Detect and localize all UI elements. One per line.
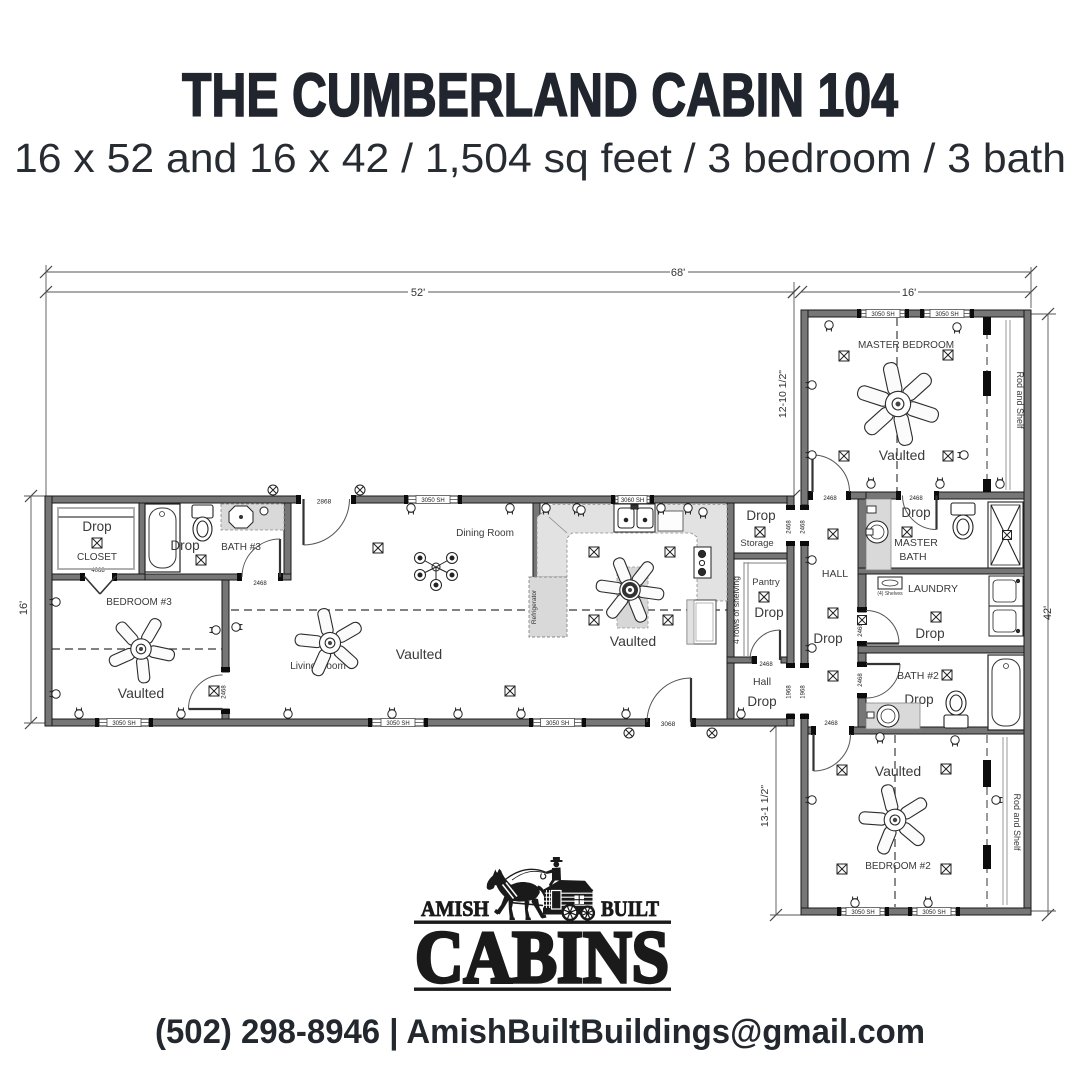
svg-text:(502) 298-8946 | AmishBuiltBui: (502) 298-8946 | AmishBuiltBuildings@gma…: [155, 1013, 925, 1051]
svg-text:Vaulted: Vaulted: [118, 685, 164, 701]
svg-text:16': 16': [18, 601, 30, 615]
svg-text:68': 68': [671, 267, 685, 279]
svg-text:Drop: Drop: [915, 626, 944, 641]
svg-text:Drop: Drop: [82, 519, 111, 534]
svg-text:13-1 1/2": 13-1 1/2": [759, 785, 771, 828]
svg-text:BATH #2: BATH #2: [897, 670, 939, 682]
svg-text:CLOSET: CLOSET: [77, 552, 117, 563]
svg-text:BEDROOM #3: BEDROOM #3: [106, 597, 172, 608]
svg-text:2468: 2468: [222, 685, 228, 699]
svg-text:12-10 1/2": 12-10 1/2": [777, 370, 789, 418]
svg-text:3050 SH: 3050 SH: [421, 498, 444, 504]
svg-text:Drop: Drop: [813, 631, 842, 646]
svg-text:3068: 3068: [661, 721, 676, 728]
svg-text:LAUNDRY: LAUNDRY: [908, 583, 958, 595]
svg-text:Hall: Hall: [753, 676, 771, 688]
svg-text:2468: 2468: [909, 496, 923, 502]
svg-text:3060 SH: 3060 SH: [621, 498, 644, 504]
svg-text:3050 SH: 3050 SH: [546, 721, 569, 727]
svg-text:3050 SH: 3050 SH: [386, 721, 409, 727]
svg-text:Vaulted: Vaulted: [875, 763, 921, 779]
svg-text:Drop: Drop: [747, 694, 776, 709]
svg-text:2468: 2468: [253, 581, 267, 587]
svg-text:Drop: Drop: [746, 508, 775, 523]
svg-text:3050 SH: 3050 SH: [871, 312, 894, 318]
svg-text:Drop: Drop: [901, 505, 930, 520]
svg-text:Vaulted: Vaulted: [396, 646, 442, 662]
svg-text:2868: 2868: [317, 499, 332, 506]
svg-text:2468: 2468: [787, 520, 793, 534]
svg-text:2468: 2468: [823, 496, 837, 502]
svg-text:MASTER: MASTER: [894, 537, 938, 549]
svg-text:(4) Shelves: (4) Shelves: [877, 591, 903, 597]
svg-text:3050 SH: 3050 SH: [922, 910, 945, 916]
svg-text:Drop: Drop: [754, 605, 783, 620]
svg-text:Rod and Shelf: Rod and Shelf: [1015, 371, 1025, 429]
svg-text:Drop: Drop: [170, 538, 199, 553]
svg-text:HALL: HALL: [822, 568, 848, 580]
svg-text:2468: 2468: [801, 520, 807, 534]
svg-text:CABINS: CABINS: [415, 917, 669, 999]
svg-text:2468: 2468: [858, 673, 864, 687]
svg-text:52': 52': [411, 287, 425, 299]
svg-text:BATH #3: BATH #3: [221, 542, 261, 553]
svg-text:Vaulted: Vaulted: [879, 447, 925, 463]
svg-text:BATH: BATH: [899, 551, 926, 563]
svg-text:2468: 2468: [759, 662, 773, 668]
svg-text:16 x 52 and 16 x 42 / 1,504 sq: 16 x 52 and 16 x 42 / 1,504 sq feet / 3 …: [14, 135, 1066, 181]
svg-text:3050 SH: 3050 SH: [851, 910, 874, 916]
svg-text:Vaulted: Vaulted: [610, 633, 656, 649]
svg-text:Rod and Shelf: Rod and Shelf: [1012, 793, 1022, 851]
svg-text:Dining Room: Dining Room: [456, 528, 514, 539]
svg-text:Storage: Storage: [740, 538, 773, 549]
svg-text:4 rows of shelving: 4 rows of shelving: [731, 576, 741, 644]
svg-text:Pantry: Pantry: [752, 577, 780, 588]
svg-text:THE CUMBERLAND CABIN 104: THE CUMBERLAND CABIN 104: [182, 61, 898, 129]
svg-text:42': 42': [1042, 606, 1054, 620]
svg-text:2468: 2468: [824, 721, 838, 727]
svg-text:16': 16': [902, 287, 916, 299]
svg-text:3050 SH: 3050 SH: [112, 721, 135, 727]
svg-text:Refrigerator: Refrigerator: [531, 589, 538, 624]
svg-text:1968: 1968: [801, 685, 807, 699]
svg-text:3050 SH: 3050 SH: [935, 312, 958, 318]
svg-text:1968: 1968: [787, 685, 793, 699]
svg-text:MASTER BEDROOM: MASTER BEDROOM: [858, 340, 954, 351]
svg-text:BEDROOM #2: BEDROOM #2: [865, 861, 931, 872]
